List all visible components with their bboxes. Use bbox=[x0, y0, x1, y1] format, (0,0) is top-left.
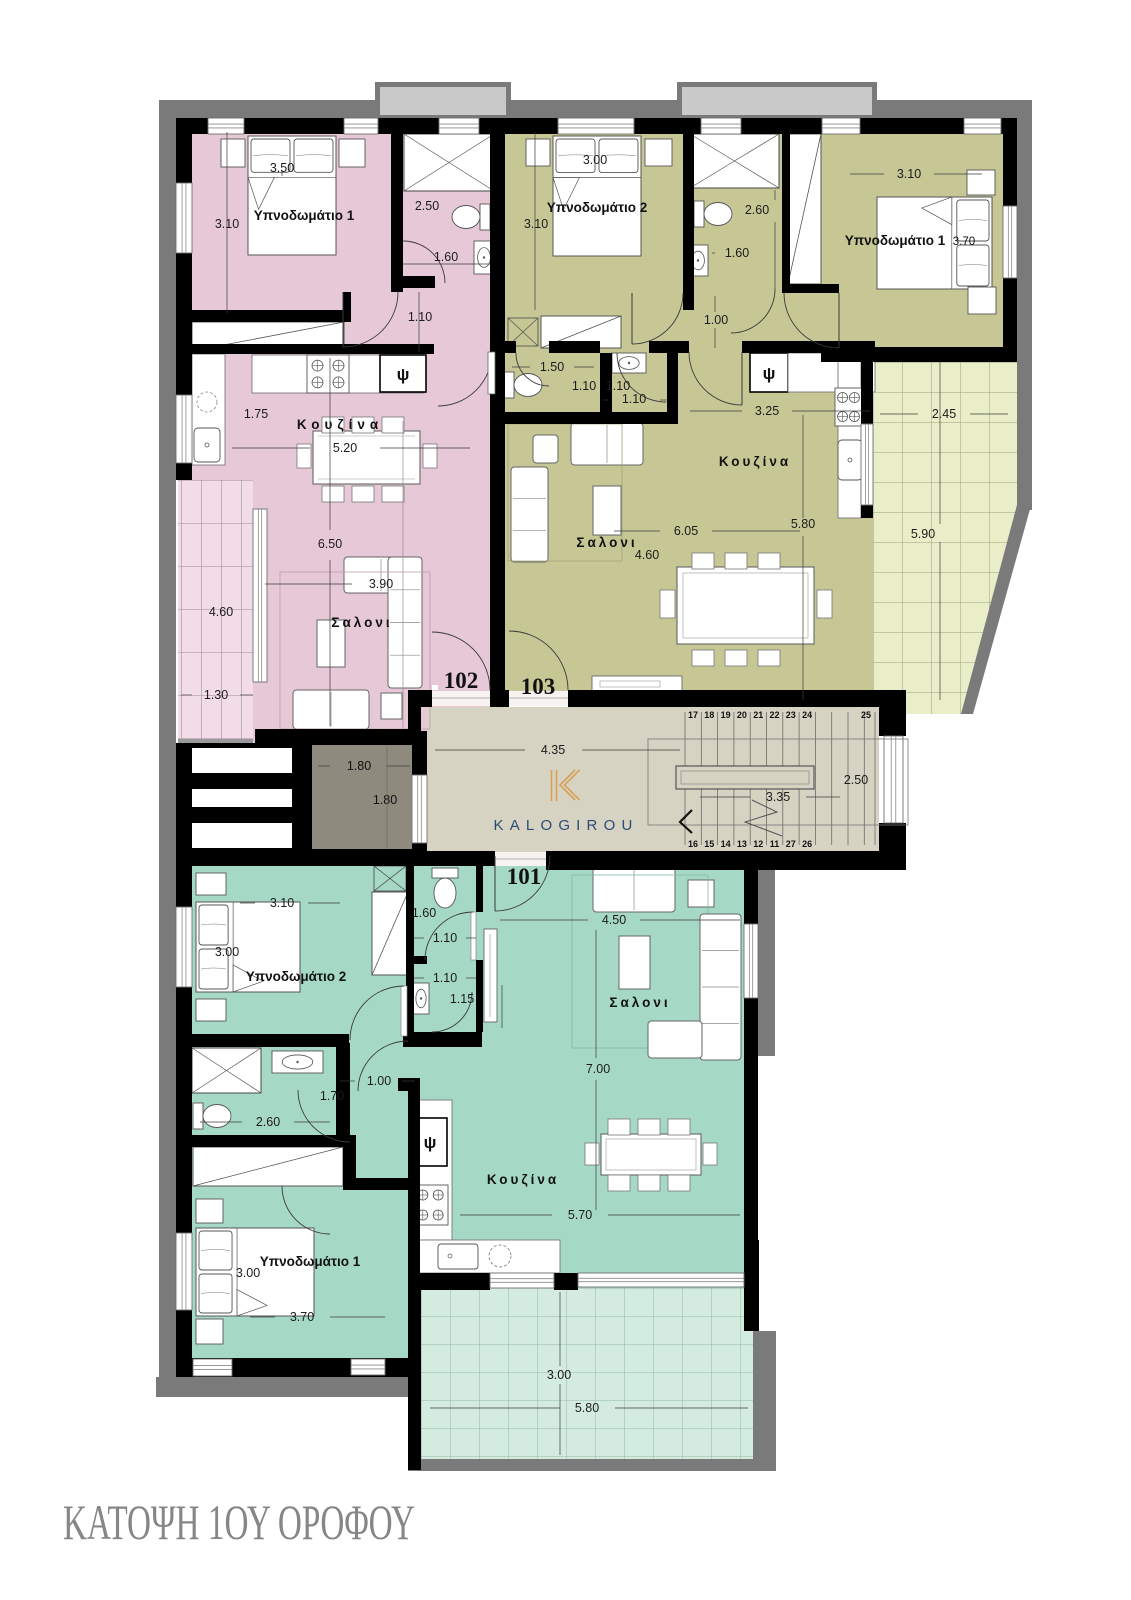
svg-text:1.10: 1.10 bbox=[572, 379, 596, 393]
svg-text:5.70: 5.70 bbox=[568, 1208, 592, 1222]
svg-text:12: 12 bbox=[753, 839, 763, 849]
svg-text:ΚΑΤΟΨΗ 1ΟΥ ΟΡΟΦΟΥ: ΚΑΤΟΨΗ 1ΟΥ ΟΡΟΦΟΥ bbox=[63, 1494, 415, 1550]
svg-text:1.80: 1.80 bbox=[347, 759, 371, 773]
svg-text:1.15: 1.15 bbox=[450, 992, 474, 1006]
svg-text:2.50: 2.50 bbox=[415, 199, 439, 213]
svg-text:6.50: 6.50 bbox=[318, 537, 342, 551]
svg-text:Κουζίνα: Κουζίνα bbox=[297, 417, 383, 432]
svg-text:3.25: 3.25 bbox=[755, 404, 779, 418]
svg-text:1.10: 1.10 bbox=[622, 392, 646, 406]
svg-text:1.10: 1.10 bbox=[606, 379, 630, 393]
svg-text:3.10: 3.10 bbox=[524, 217, 548, 231]
svg-text:1.80: 1.80 bbox=[373, 793, 397, 807]
svg-text:17: 17 bbox=[688, 710, 698, 720]
svg-text:1.00: 1.00 bbox=[367, 1074, 391, 1088]
svg-text:1.60: 1.60 bbox=[434, 250, 458, 264]
svg-text:3.70: 3.70 bbox=[290, 1310, 314, 1324]
svg-text:2.50: 2.50 bbox=[844, 773, 868, 787]
svg-text:5.80: 5.80 bbox=[791, 517, 815, 531]
svg-text:Σαλονι: Σαλονι bbox=[576, 535, 637, 550]
svg-text:4.60: 4.60 bbox=[209, 605, 233, 619]
svg-text:1.50: 1.50 bbox=[540, 360, 564, 374]
svg-text:ψ: ψ bbox=[397, 365, 410, 384]
svg-text:3.70: 3.70 bbox=[953, 236, 975, 248]
svg-text:ψ: ψ bbox=[424, 1133, 437, 1152]
svg-text:5.80: 5.80 bbox=[575, 1401, 599, 1415]
svg-text:5.20: 5.20 bbox=[333, 441, 357, 455]
svg-text:KALOGIROU: KALOGIROU bbox=[494, 817, 639, 834]
svg-text:1.10: 1.10 bbox=[433, 931, 457, 945]
svg-text:2.60: 2.60 bbox=[256, 1115, 280, 1129]
svg-text:4.50: 4.50 bbox=[602, 913, 626, 927]
svg-text:18: 18 bbox=[704, 710, 714, 720]
svg-text:1.70: 1.70 bbox=[320, 1089, 344, 1103]
svg-text:1.60: 1.60 bbox=[412, 906, 436, 920]
svg-text:3.10: 3.10 bbox=[897, 167, 921, 181]
svg-text:4.35: 4.35 bbox=[541, 743, 565, 757]
svg-text:26: 26 bbox=[802, 839, 812, 849]
svg-text:2.45: 2.45 bbox=[932, 407, 956, 421]
svg-text:2.60: 2.60 bbox=[745, 203, 769, 217]
svg-text:1.00: 1.00 bbox=[704, 313, 728, 327]
svg-text:3.90: 3.90 bbox=[369, 577, 393, 591]
svg-text:Κουζίνα: Κουζίνα bbox=[487, 1172, 559, 1187]
svg-text:Υπνοδωμάτιο 2: Υπνοδωμάτιο 2 bbox=[246, 969, 347, 984]
svg-text:5.90: 5.90 bbox=[911, 527, 935, 541]
svg-text:3.00: 3.00 bbox=[583, 153, 607, 167]
svg-text:23: 23 bbox=[786, 710, 796, 720]
svg-text:1.10: 1.10 bbox=[408, 310, 432, 324]
svg-text:Υπνοδωμάτιο 1: Υπνοδωμάτιο 1 bbox=[260, 1254, 361, 1269]
svg-text:Σαλονι: Σαλονι bbox=[609, 995, 670, 1010]
svg-text:Σαλονι: Σαλονι bbox=[331, 615, 392, 630]
svg-text:16: 16 bbox=[688, 839, 698, 849]
svg-text:3.00: 3.00 bbox=[215, 945, 239, 959]
svg-text:14: 14 bbox=[721, 839, 731, 849]
svg-text:Υπνοδωμάτιο 1: Υπνοδωμάτιο 1 bbox=[254, 208, 355, 223]
svg-text:3.00: 3.00 bbox=[547, 1368, 571, 1382]
svg-text:19: 19 bbox=[721, 710, 731, 720]
svg-text:21: 21 bbox=[753, 710, 763, 720]
svg-text:103: 103 bbox=[521, 674, 556, 699]
svg-text:11: 11 bbox=[770, 839, 780, 849]
svg-text:101: 101 bbox=[507, 864, 542, 889]
svg-text:1.30: 1.30 bbox=[204, 688, 228, 702]
svg-text:Υπνοδωμάτιο 2: Υπνοδωμάτιο 2 bbox=[547, 200, 648, 215]
svg-text:1.75: 1.75 bbox=[244, 407, 268, 421]
svg-text:3.00: 3.00 bbox=[236, 1266, 260, 1280]
svg-text:15: 15 bbox=[704, 839, 714, 849]
svg-text:3.50: 3.50 bbox=[270, 161, 294, 175]
svg-text:13: 13 bbox=[737, 839, 747, 849]
svg-text:20: 20 bbox=[737, 710, 747, 720]
svg-text:25: 25 bbox=[861, 710, 871, 720]
svg-text:3.10: 3.10 bbox=[270, 896, 294, 910]
svg-text:3.35: 3.35 bbox=[766, 790, 790, 804]
svg-text:1.10: 1.10 bbox=[433, 971, 457, 985]
svg-text:ψ: ψ bbox=[763, 364, 776, 383]
svg-text:3.10: 3.10 bbox=[215, 217, 239, 231]
svg-text:22: 22 bbox=[769, 710, 779, 720]
svg-text:Κουζίνα: Κουζίνα bbox=[719, 454, 791, 469]
svg-text:27: 27 bbox=[786, 839, 796, 849]
svg-text:4.60: 4.60 bbox=[635, 548, 659, 562]
svg-text:102: 102 bbox=[444, 668, 479, 693]
svg-text:7.00: 7.00 bbox=[586, 1062, 610, 1076]
svg-text:1.60: 1.60 bbox=[725, 246, 749, 260]
svg-text:6.05: 6.05 bbox=[674, 524, 698, 538]
svg-text:24: 24 bbox=[802, 710, 812, 720]
svg-text:Υπνοδωμάτιο 1: Υπνοδωμάτιο 1 bbox=[845, 233, 946, 248]
